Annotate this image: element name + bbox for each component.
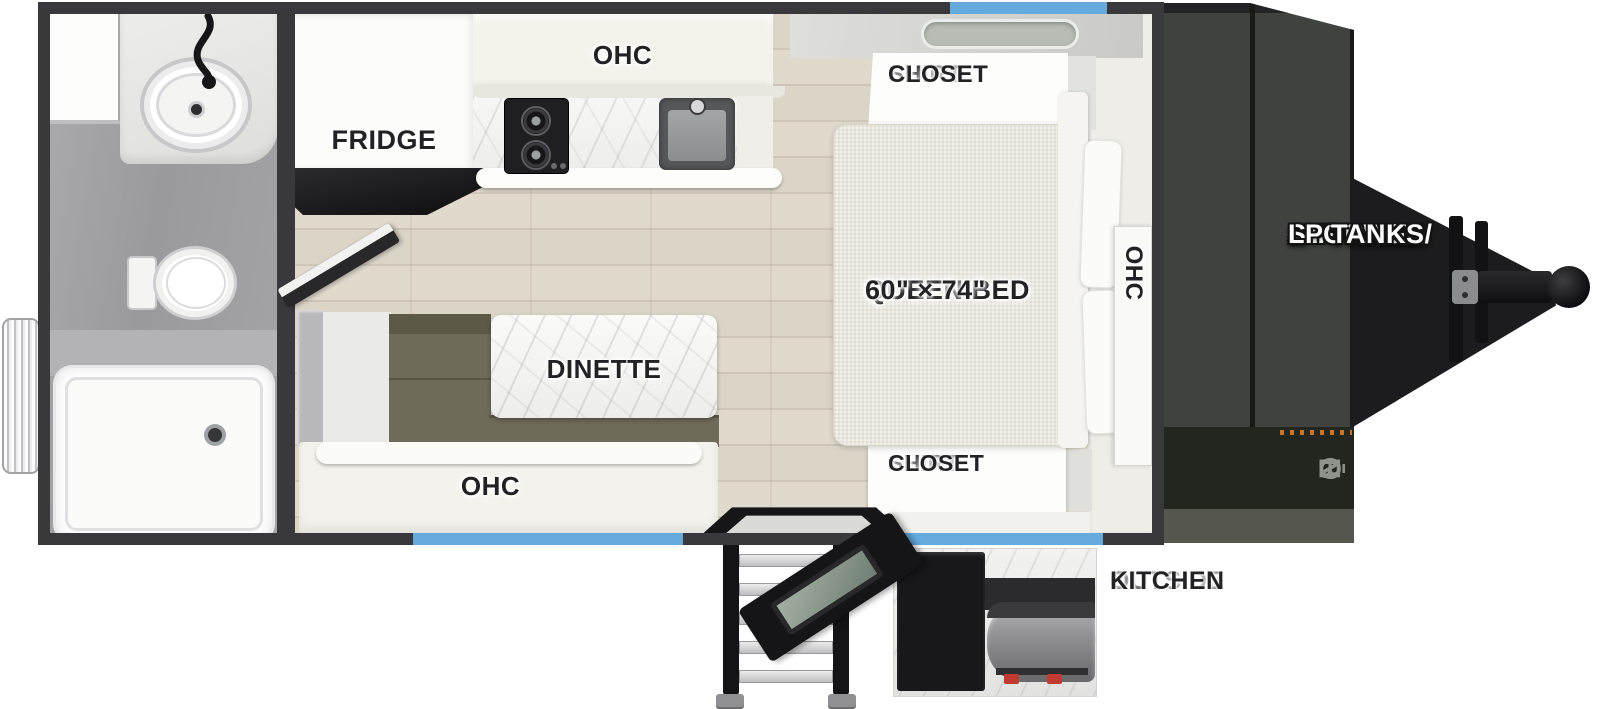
shirt-closet-bottom-side [1062,449,1092,511]
sink-drain [191,104,202,115]
window-top [950,2,1107,14]
label-line: CLOSET [888,62,988,88]
label-line: LP TANKS [1288,218,1425,251]
tub-drain [208,428,222,442]
exterior-vent-grille [2,318,40,474]
dinette-cabinet-lip [316,442,702,464]
bathroom-cabinet [48,12,122,124]
step-rail [723,545,739,695]
stove-knob [551,163,557,169]
step-foot [716,694,744,707]
outside-kitchen-cabinet [897,552,985,691]
storage-top-trim [1164,3,1354,13]
storage-light-band [1164,509,1354,543]
dresser-tray-inset [921,19,1079,49]
dinette-partition [297,310,325,447]
bench-cushion-top [389,314,491,334]
hitch-tongue [1478,271,1552,303]
burner-icon [521,140,551,170]
label-line: CLOSET [888,451,984,476]
brand-tagline-marks [1280,430,1352,435]
front-storage-compartment: NŌBO [1164,3,1354,543]
toilet [153,246,237,320]
stove-cooktop [504,98,569,174]
toilet-seat [166,257,226,309]
faucet-icon [182,12,226,96]
floorplan-canvas: NŌBO FRIDGE OHC DINETTE OHC SHIRT CLOSET… [0,0,1600,709]
bench-seam [389,378,491,380]
label-kitchen-ohc: OHC [560,41,685,70]
step-foot [828,694,856,707]
label-line: 60" × 74" [865,274,986,308]
kitchen-sink [659,98,735,170]
wall-rear [38,2,50,545]
kitchen-sink-basin [668,110,726,161]
label-dinette-ohc: OHC [428,472,553,501]
griddle-lid [987,602,1095,618]
label-line: KITCHEN [1110,565,1225,598]
label-fridge: FRIDGE [300,126,468,156]
window-bottom-right [905,533,1103,545]
counter-end-panel [737,96,773,172]
window-bottom-left [413,533,683,545]
stove-knob [560,163,566,169]
tub-basin [65,377,263,531]
tongue-jack [1452,270,1478,304]
kitchen-faucet [691,100,704,113]
label-dinette: DINETTE [521,355,687,384]
label-bed-ohc: OHC [1120,218,1146,328]
dinette-armrest [323,312,391,447]
wall-front [1152,2,1164,545]
griddle-knob [1004,674,1019,684]
entry-step [739,670,833,683]
burner-icon [521,106,551,136]
brand-logo: NŌBO [1276,439,1358,501]
bathroom-wall [277,14,295,533]
hitch-coupler [1548,266,1590,308]
griddle-knob [1047,674,1062,684]
shower-tub [56,368,272,540]
dinette-bench-back [389,314,491,447]
